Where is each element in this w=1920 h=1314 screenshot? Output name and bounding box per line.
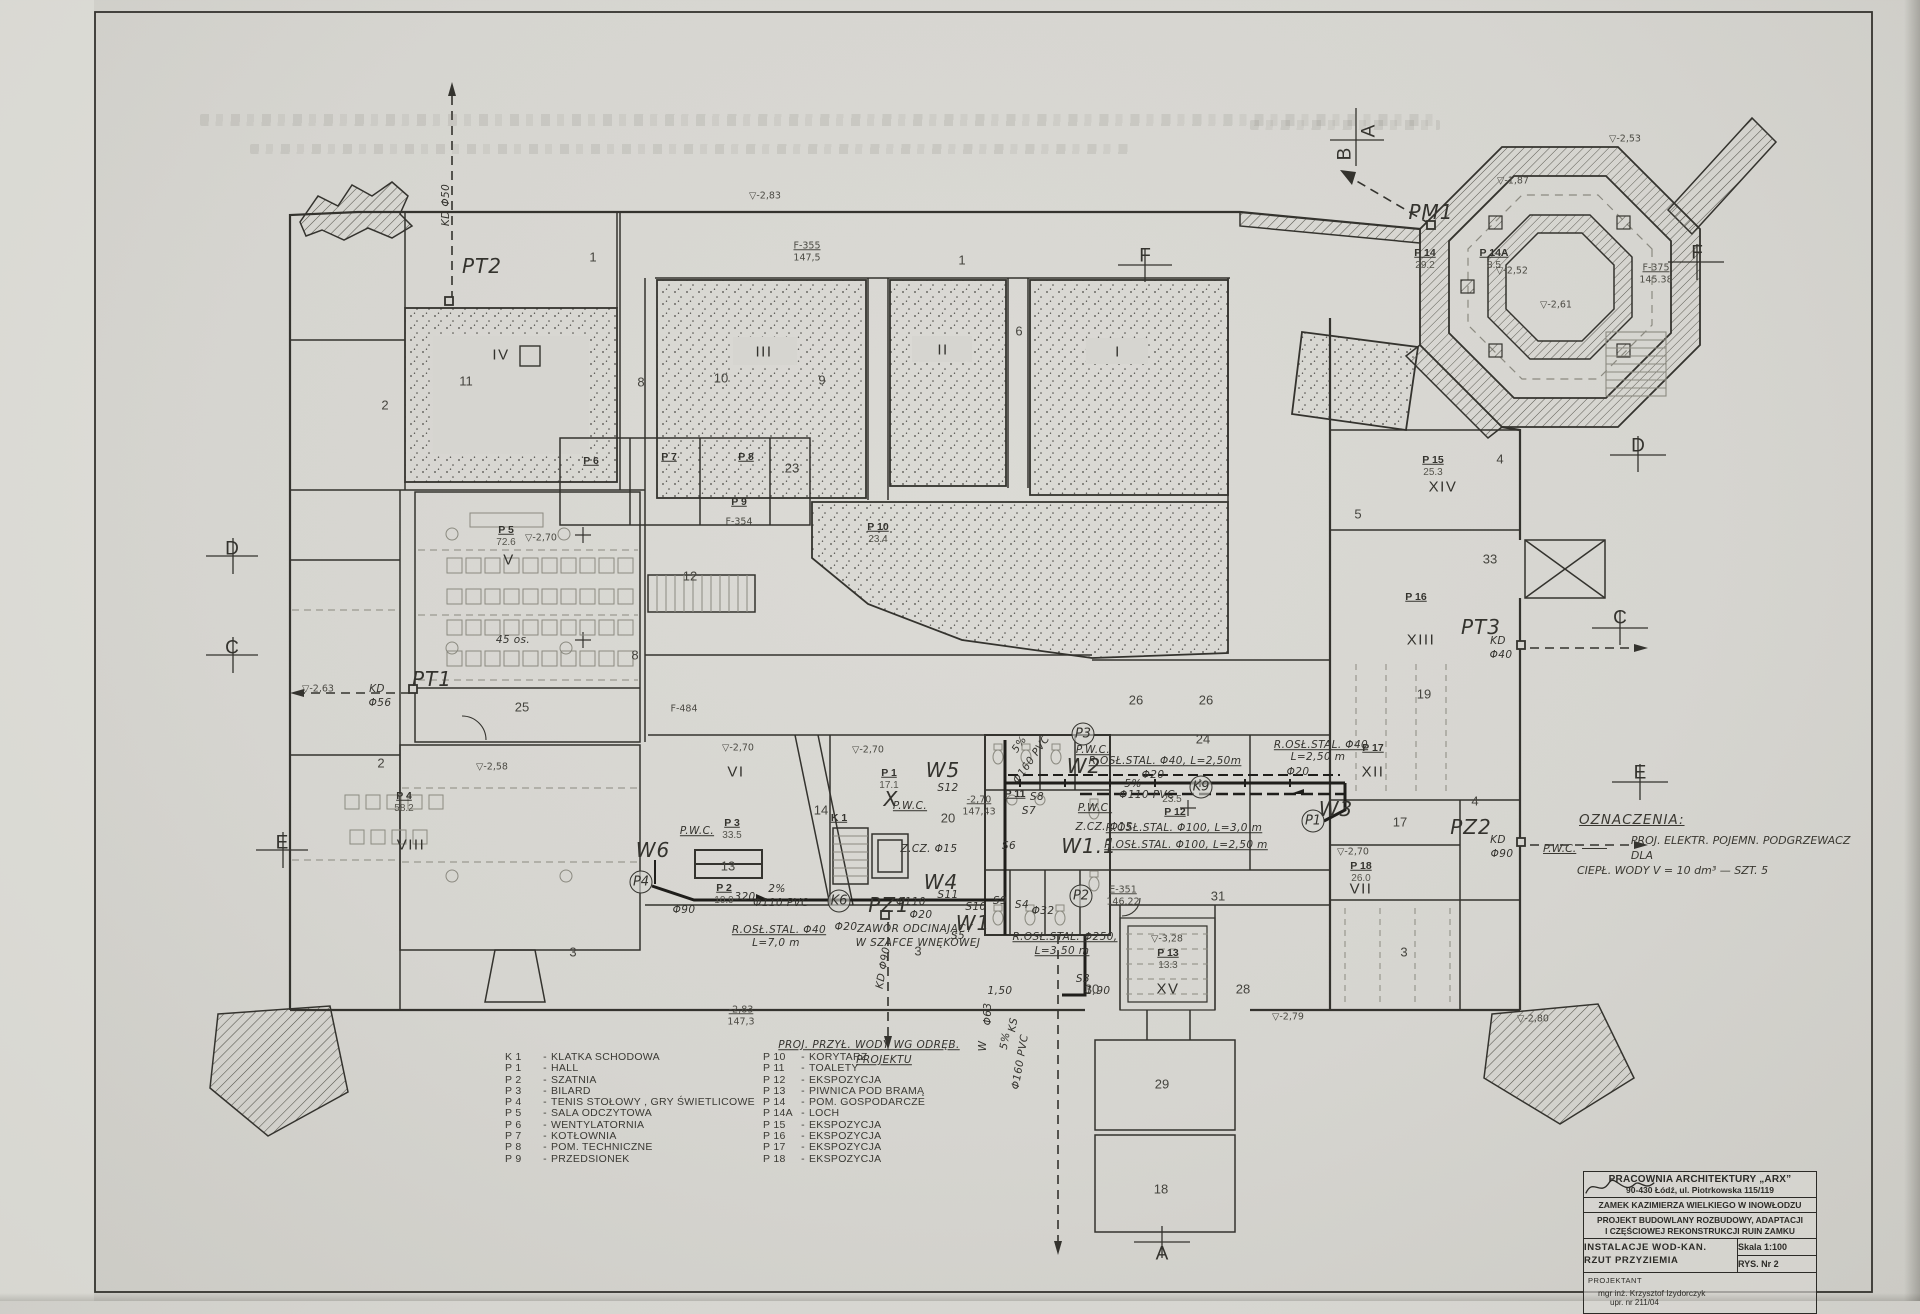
faint-pencil-annotations (1250, 120, 1440, 130)
legend-row: P 8-POM. TECHNICZNE (505, 1142, 755, 1153)
legend-separator: - (797, 1154, 809, 1165)
legend-column-2: P 10-KORYTARZP 11-TOALETYP 12-EKSPOZYCJA… (763, 1052, 925, 1165)
legend-code: P 8 (505, 1142, 539, 1153)
legend-label: EKSPOZYCJA (809, 1142, 881, 1153)
sheet-number: RYS. Nr 2 (1738, 1256, 1816, 1272)
pwc-symbol: P.W.C. (1543, 842, 1576, 855)
legend-row: P 11-TOALETY (763, 1063, 925, 1074)
symbols-note-line1: PROJ. ELEKTR. POJEMN. PODGRZEWACZ DLA (1631, 834, 1863, 864)
legend-separator: - (539, 1154, 551, 1165)
drawing-sheet: DCEFFDCEAABPT2PT1PT3PZ2PZ1PM1W1W1.1W2W3W… (0, 0, 1920, 1301)
room-legend: K 1-KLATKA SCHODOWAP 1-HALLP 2-SZATNIAP … (505, 1052, 1010, 1165)
scan-edge-shadow-bottom (0, 1293, 1920, 1301)
legend-label: HALL (551, 1063, 578, 1074)
legend-label: TOALETY (809, 1063, 859, 1074)
symbols-note-line2: CIEPŁ. WODY V = 10 dm³ — SZT. 5 (1577, 864, 1863, 877)
legend-column-1: K 1-KLATKA SCHODOWAP 1-HALLP 2-SZATNIAP … (505, 1052, 755, 1165)
legend-label: EKSPOZYCJA (809, 1154, 881, 1165)
scan-edge-shadow-right (1904, 0, 1920, 1301)
legend-separator: - (797, 1142, 809, 1153)
legend-separator: - (539, 1063, 551, 1074)
faint-pencil-annotations (250, 144, 1130, 154)
legend-code: P 9 (505, 1154, 539, 1165)
drawing-title-line2: RZUT PRZYZIEMIA (1584, 1255, 1737, 1268)
plumbing-pipes (652, 740, 1345, 995)
legend-code: P 17 (763, 1142, 797, 1153)
designer-role: PROJEKTANT (1588, 1276, 1736, 1285)
legend-row: P 18-EKSPOZYCJA (763, 1154, 925, 1165)
legend-label: PRZEDSIONEK (551, 1154, 630, 1165)
drawing-scale: Skala 1:100 (1738, 1239, 1816, 1256)
legend-row: P 9-PRZEDSIONEK (505, 1154, 755, 1165)
legend-code: P 18 (763, 1154, 797, 1165)
legend-row: P 1-HALL (505, 1063, 755, 1074)
symbols-note: OZNACZENIA: P.W.C. PROJ. ELEKTR. POJEMN.… (1543, 812, 1863, 877)
scanned-drawing-sheet: { "colors": { "paper": "#d6d5d0", "ink":… (0, 0, 1920, 1301)
legend-code: P 11 (763, 1063, 797, 1074)
project-scope-line1: PROJEKT BUDOWLANY ROZBUDOWY, ADAPTACJI (1584, 1215, 1816, 1226)
tower-octagon (1420, 147, 1700, 427)
pwc-symbol-line (1582, 848, 1607, 849)
symbols-note-heading: OZNACZENIA: (1579, 812, 1863, 828)
legend-separator: - (539, 1142, 551, 1153)
legend-label: POM. TECHNICZNE (551, 1142, 653, 1153)
legend-row: P 17-EKSPOZYCJA (763, 1142, 925, 1153)
project-scope-line2: I CZĘŚCIOWEJ REKONSTRUKCJI RUIN ZAMKU (1584, 1226, 1816, 1237)
east-bastion (1525, 540, 1605, 598)
legend-code: P 1 (505, 1063, 539, 1074)
legend-separator: - (797, 1063, 809, 1074)
drawing-title-line1: INSTALACJE WOD-KAN. (1584, 1242, 1737, 1255)
